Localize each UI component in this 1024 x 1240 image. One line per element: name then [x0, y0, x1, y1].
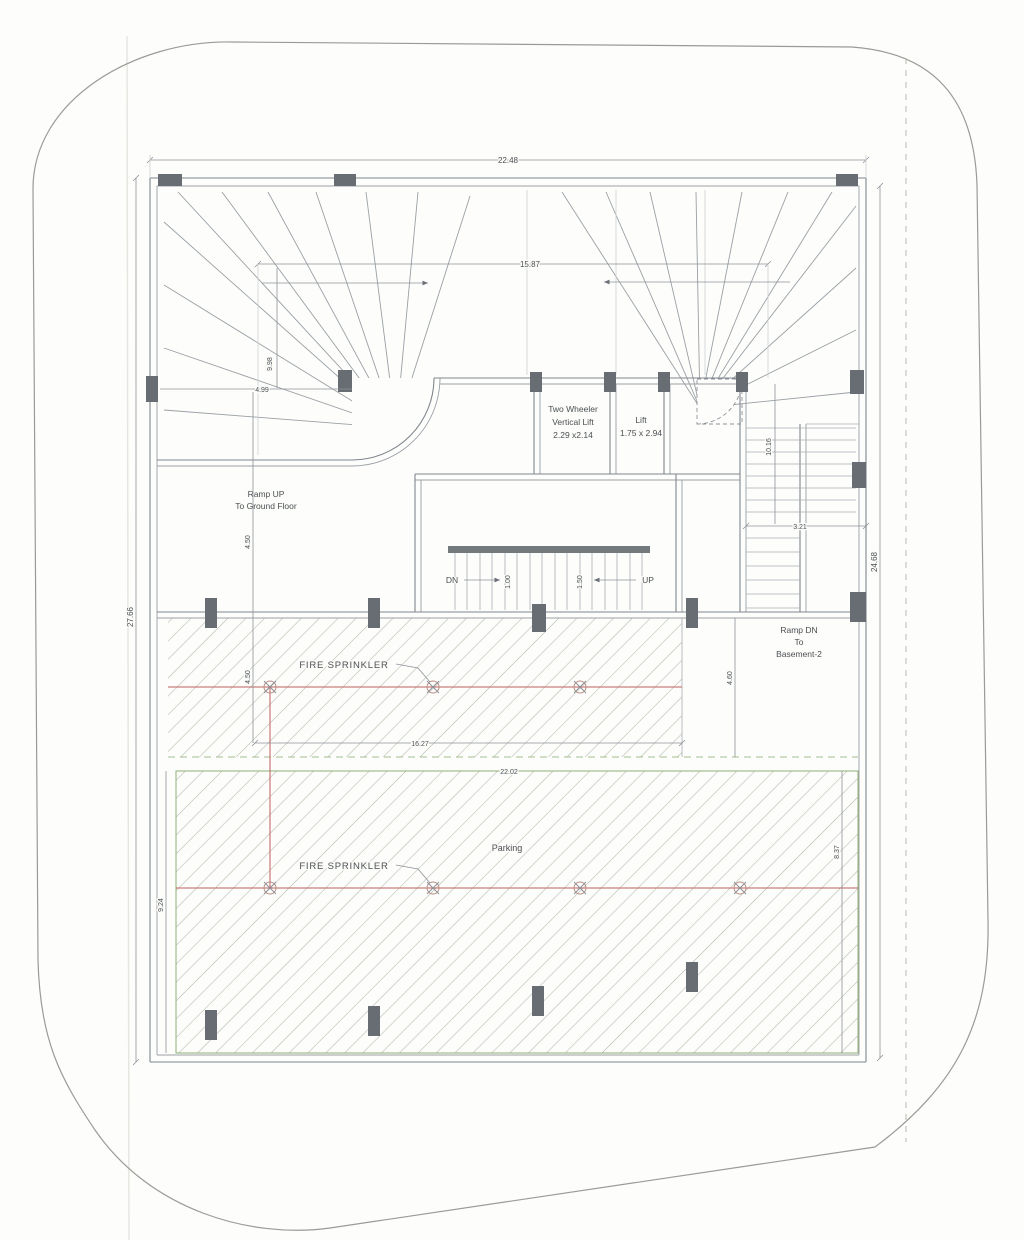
- dim-left-height: 27.66: [126, 606, 135, 627]
- dim-ramp-left-length: 9.98: [267, 357, 274, 371]
- dim-stair-b: 1.50: [577, 575, 584, 589]
- dim-ramp-dn-length: 10.16: [766, 438, 773, 456]
- dim-mid-left-a: 4.50: [245, 535, 252, 549]
- ramp-dn-label-2: To: [795, 637, 804, 647]
- lift-label-2: 1.75 x 2.94: [620, 428, 662, 438]
- ramp-up-label-2: To Ground Floor: [235, 501, 297, 511]
- dim-mid-right: 4.60: [727, 671, 734, 685]
- two-wheeler-lift-label-1: Two Wheeler: [548, 404, 598, 414]
- dim-mid-left-b: 4.50: [245, 670, 252, 684]
- stair-dn-label: DN: [446, 575, 458, 585]
- stair-up-label: UP: [642, 575, 654, 585]
- floor-plan-drawing: DN UP 1.00 1.50: [0, 0, 1024, 1240]
- stair-handrail: [448, 546, 650, 553]
- two-wheeler-lift-label-3: 2.29 x2.14: [553, 430, 593, 440]
- two-wheeler-lift-label-2: Vertical Lift: [552, 417, 594, 427]
- dim-parking-lower-width: 22.02: [500, 769, 518, 776]
- ramp-dn-label-1: Ramp DN: [780, 625, 817, 635]
- parking-hatch-lower: [176, 771, 858, 1053]
- dim-stair-a: 1.00: [505, 575, 512, 589]
- dim-right-height: 24.68: [870, 551, 879, 572]
- dim-lower-left: 9.24: [158, 898, 165, 912]
- lift-label-1: Lift: [635, 415, 647, 425]
- dim-ramp-dn-width: 3.21: [793, 524, 807, 531]
- floor-plan-page: DN UP 1.00 1.50: [0, 0, 1024, 1240]
- fire-sprinkler-label: FIRE SPRINKLER: [299, 660, 388, 671]
- dim-top-width: 22.48: [498, 156, 519, 165]
- dim-inner-width: 15.87: [520, 260, 541, 269]
- parking-label: Parking: [492, 843, 523, 853]
- dim-ramp-left-width: 4.99: [255, 387, 269, 394]
- ramp-dn-label-3: Basement-2: [776, 649, 822, 659]
- fire-sprinkler-label: FIRE SPRINKLER: [299, 861, 388, 872]
- dim-lower-right: 8.37: [834, 845, 841, 859]
- dim-parking-upper-width: 16.27: [411, 741, 429, 748]
